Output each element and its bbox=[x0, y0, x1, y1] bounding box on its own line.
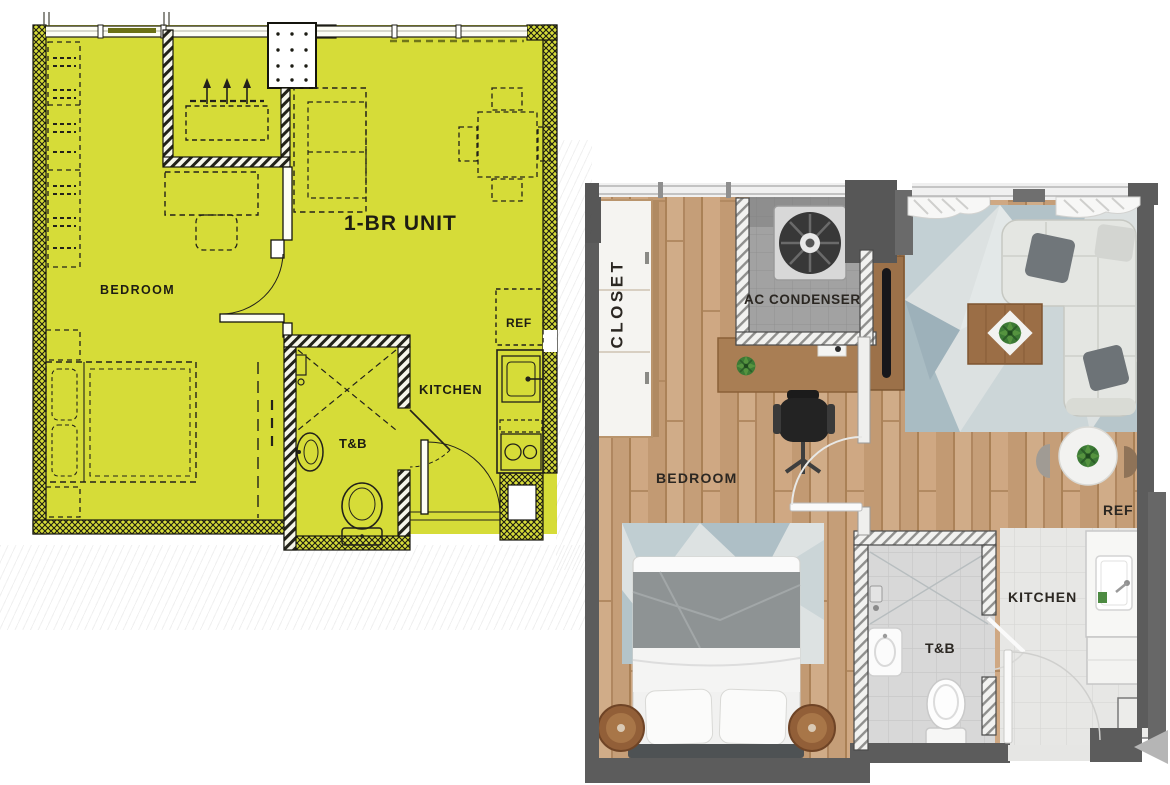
right-plan-ac-area bbox=[749, 197, 860, 332]
label-left-toilet-bath: T&B bbox=[339, 437, 367, 450]
right-plan-closet-cabinet bbox=[597, 200, 659, 437]
label-left-unit-type: 1-BR UNIT bbox=[344, 213, 457, 234]
label-right-toilet-bath: T&B bbox=[925, 641, 955, 655]
left-plan-entry-pad bbox=[268, 23, 316, 88]
label-right-bedroom: BEDROOM bbox=[656, 471, 738, 485]
right-plan-desk bbox=[718, 338, 858, 392]
left-plan bbox=[33, 12, 557, 550]
tv-icon bbox=[882, 268, 891, 378]
right-plan-coffee-table bbox=[968, 304, 1042, 364]
floor-plan-graphics bbox=[0, 0, 1170, 785]
ac-fan-icon bbox=[774, 206, 846, 280]
right-plan-bed bbox=[628, 557, 804, 758]
label-left-refrigerator: REF bbox=[506, 317, 532, 329]
label-right-closet: CLOSET bbox=[609, 244, 626, 364]
label-left-kitchen: KITCHEN bbox=[419, 383, 482, 396]
label-right-refrigerator: REF bbox=[1103, 503, 1133, 517]
floor-plan-page: BEDROOM 1-BR UNIT REF KITCHEN T&B CLOSET… bbox=[0, 0, 1170, 785]
toilet bbox=[926, 679, 966, 747]
label-right-kitchen: KITCHEN bbox=[1008, 590, 1077, 604]
label-right-ac-condenser: AC CONDENSER bbox=[744, 293, 861, 307]
label-left-bedroom: BEDROOM bbox=[100, 284, 175, 297]
